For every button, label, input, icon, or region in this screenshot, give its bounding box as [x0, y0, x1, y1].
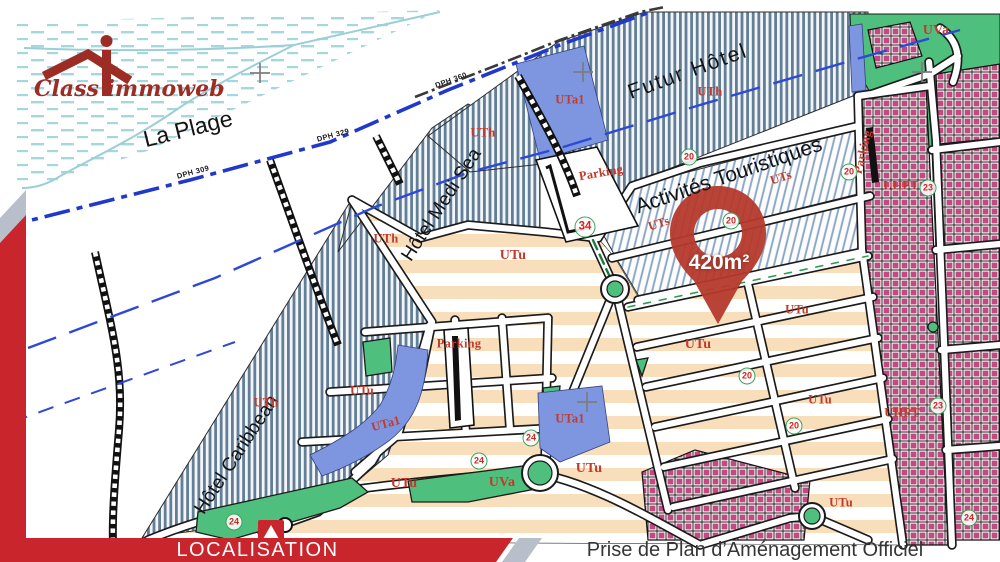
road-number-20: 20 [841, 164, 858, 181]
road-number-20: 20 [786, 418, 803, 435]
zone-label-uva: UVa [489, 475, 516, 491]
road-number-23: 23 [930, 398, 947, 415]
zone-label-uhpt: UHPT [884, 406, 920, 421]
road-number-34: 34 [575, 217, 596, 238]
pin-area-label: 420m² [689, 251, 750, 275]
zone-label-uth: UTh [254, 396, 279, 411]
zone-label-utu: UTu [391, 476, 418, 492]
zone-label-utu: UTu [808, 393, 832, 408]
zone-label-utu: UTu [500, 248, 527, 264]
road-number-24: 24 [523, 430, 540, 447]
road-number-24: 24 [471, 453, 488, 470]
road-number-23: 23 [920, 180, 937, 197]
zone-label-uva: UVa [923, 23, 950, 39]
zone-label-uta1: UTa1 [555, 412, 585, 427]
road-number-20: 20 [681, 149, 698, 166]
zone-label-utu: UTu [350, 384, 374, 399]
logo: Class immoweb [26, 28, 206, 110]
footer-localisation-banner: LOCALISATION [0, 538, 513, 562]
zone-label-uth: UTh [698, 85, 723, 100]
footer-right-label: Prise de Plan d’Aménagement Officiel [545, 538, 965, 562]
road-number-24: 24 [226, 514, 243, 531]
zone-label-utu: UTu [576, 461, 603, 477]
zone-label-parking: Parking [437, 337, 481, 352]
localisation-slide: La Plage Hôtel Medi Sea Hôtel Caribbean … [0, 0, 1000, 562]
zone-label-utu: UTu [685, 337, 712, 353]
zone-label-uth: UTh [374, 232, 399, 247]
road-number-20: 20 [723, 213, 740, 230]
footer-left-label: LOCALISATION [30, 538, 485, 562]
logo-text: Class immoweb [34, 76, 224, 102]
zone-label-uhpt: UHPT [883, 179, 919, 194]
road-number-24: 24 [961, 510, 978, 527]
left-accent-red [0, 215, 26, 562]
zone-label-uta1: UTa1 [555, 93, 585, 108]
road-number-20: 20 [739, 368, 756, 385]
zone-label-utu: UTu [785, 303, 809, 318]
zone-label-utu: UTu [829, 496, 853, 511]
zone-label-uth: UTh [471, 126, 496, 141]
